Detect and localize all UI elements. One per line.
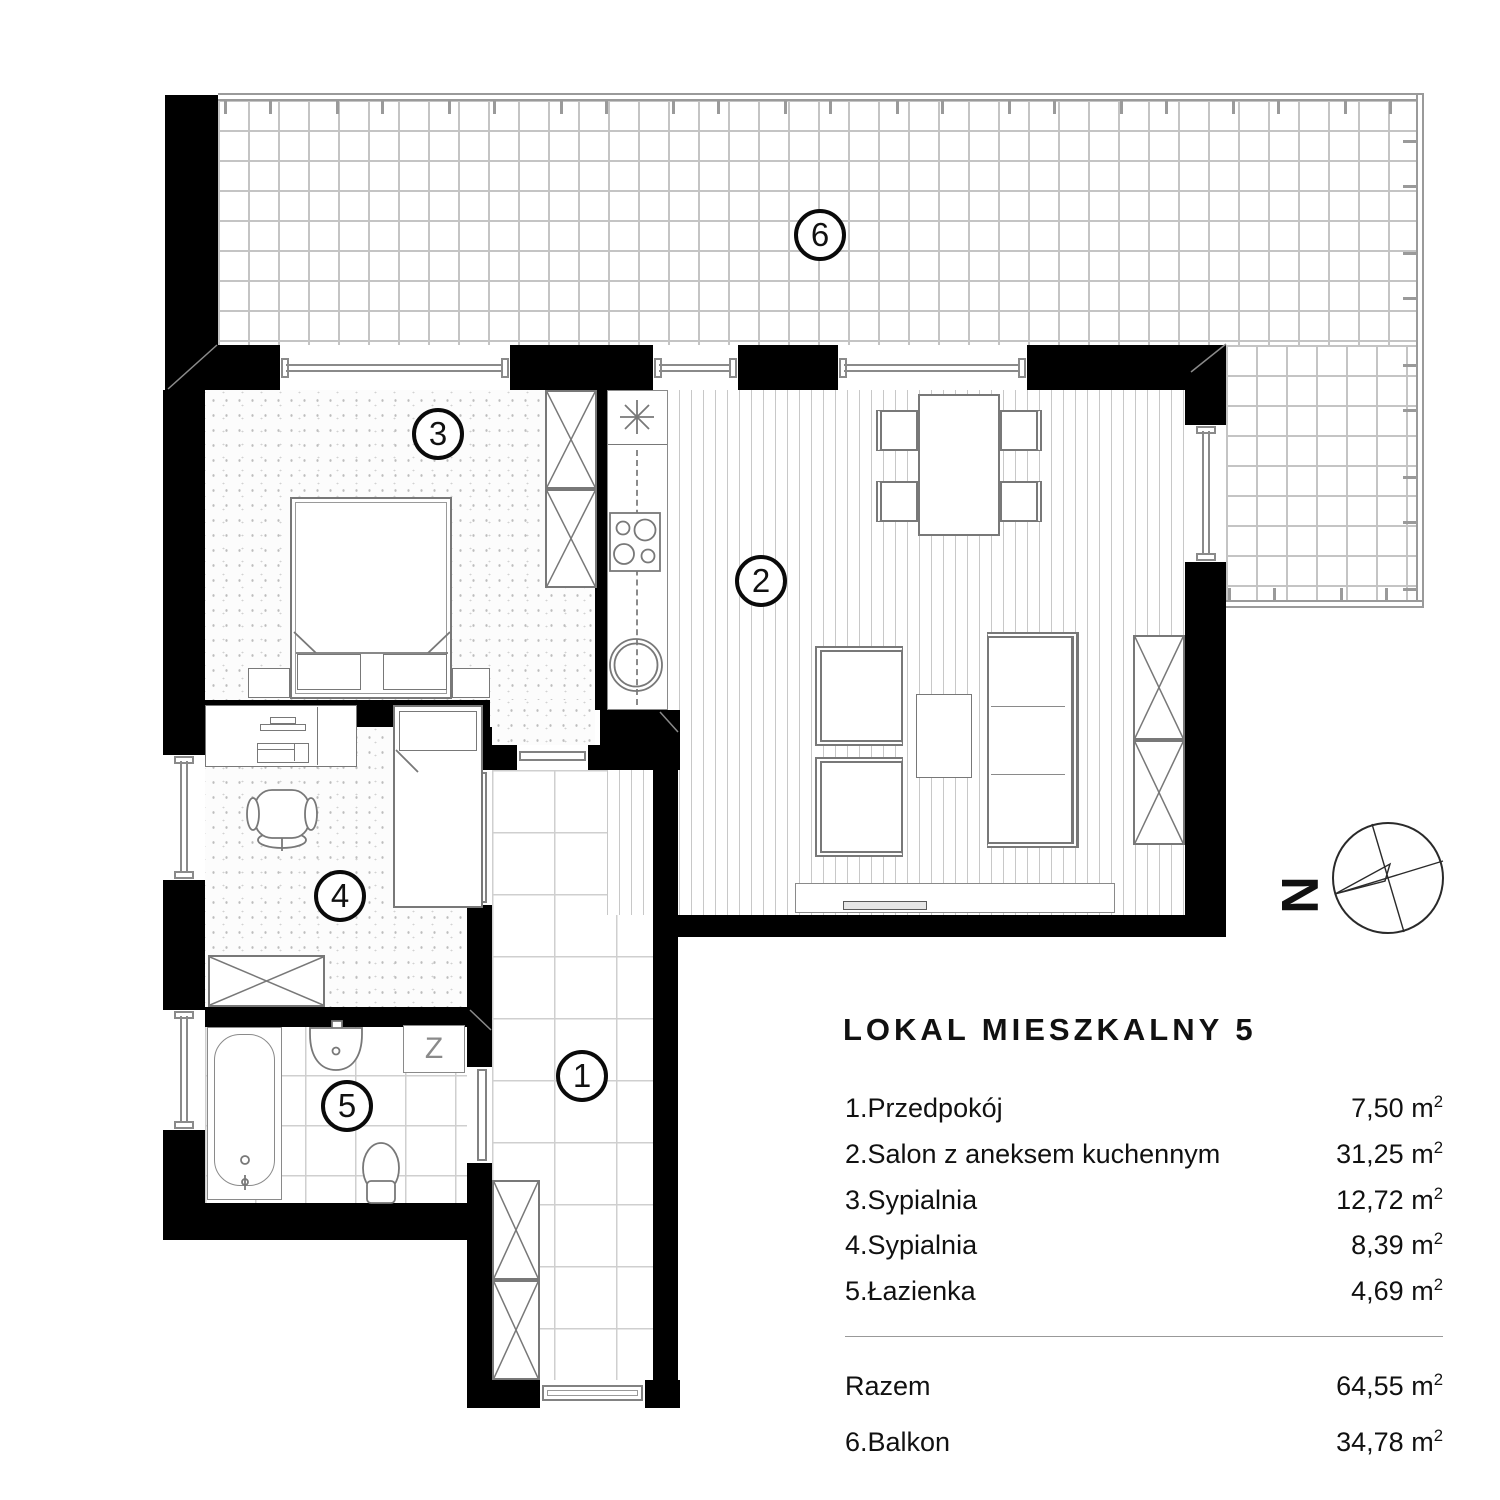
balcony-floor-right (1226, 345, 1420, 602)
armchair (815, 757, 903, 857)
unit-exp: 2 (1434, 1426, 1443, 1445)
room-marker-bedroom4: 4 (314, 870, 366, 922)
unit-exp: 2 (1434, 1370, 1443, 1389)
floor-plan-canvas: Z (0, 0, 1500, 1500)
room-area: 8,39 m2 (1351, 1229, 1443, 1261)
unit-base: m (1411, 1230, 1434, 1260)
bathtub-basin (214, 1034, 275, 1186)
pillow (399, 711, 477, 751)
room-marker-bathroom: 5 (321, 1080, 373, 1132)
room-marker-hallway: 1 (556, 1050, 608, 1102)
room-label: 4.Sypialnia (845, 1230, 977, 1261)
sofa-cushion-line (991, 774, 1065, 775)
area-value: 34,78 (1336, 1427, 1404, 1457)
wall (738, 345, 838, 390)
wall (645, 1380, 680, 1408)
balcony-railing-right (1416, 95, 1424, 608)
balcony-railing-posts-right (1403, 140, 1416, 608)
legend-total-row: Razem 64,55 m2 (845, 1370, 1443, 1404)
wardrobe (208, 955, 325, 1007)
keyboard (257, 743, 309, 763)
door-bathroom (477, 1069, 487, 1161)
wall (490, 745, 517, 770)
balcony-area: 34,78 m2 (1336, 1426, 1443, 1458)
area-value: 4,69 (1351, 1276, 1404, 1306)
window-glazing (286, 364, 504, 372)
window-glazing (180, 761, 188, 874)
wall (165, 345, 280, 390)
room-label: 5.Łazienka (845, 1276, 976, 1307)
area-unit: m2 (1411, 1139, 1443, 1169)
total-area: 64,55 m2 (1336, 1370, 1443, 1402)
wall (1185, 390, 1226, 425)
desk-divider (317, 707, 318, 765)
sofa (987, 632, 1079, 848)
entrance-door-panel (547, 1390, 638, 1396)
area-unit: m2 (1411, 1185, 1443, 1215)
north-label: N (1272, 868, 1326, 922)
monitor-top (270, 717, 296, 724)
room-area: 7,50 m2 (1351, 1092, 1443, 1124)
dining-chair (876, 410, 918, 451)
wall (467, 1380, 540, 1408)
window-bedroom4 (166, 755, 202, 880)
fridge-section-line (608, 444, 667, 445)
tv-cabinet (1133, 740, 1185, 845)
pillow (383, 654, 447, 690)
area-unit: m2 (1411, 1230, 1443, 1260)
room-area: 31,25 m2 (1336, 1138, 1443, 1170)
window-glazing (844, 364, 1021, 372)
wall (653, 915, 1226, 937)
window-glazing (659, 364, 732, 372)
window-living-east (1189, 425, 1222, 562)
window-bedroom3 (280, 347, 510, 388)
unit-base: m (1411, 1185, 1434, 1215)
nightstand (248, 668, 290, 698)
entrance-door (542, 1385, 643, 1401)
area-value: 12,72 (1336, 1185, 1404, 1215)
balcony-railing-bottom (1226, 600, 1422, 608)
window-glazing (1202, 431, 1210, 556)
window-living (838, 347, 1027, 388)
room-label: 2.Salon z aneksem kuchennym (845, 1139, 1220, 1170)
unit-exp: 2 (1434, 1229, 1443, 1248)
washing-machine-label: Z (403, 1025, 465, 1073)
keyboard-line (294, 744, 295, 761)
unit-base: m (1411, 1093, 1434, 1123)
window-bathroom (166, 1010, 202, 1130)
kitchen-tall-cabinet (545, 390, 597, 489)
sofa-cushion-line (991, 706, 1065, 707)
hall-wardrobe (492, 1280, 540, 1380)
room-label: 1.Przedpokój (845, 1093, 1003, 1124)
area-unit: m2 (1411, 1427, 1443, 1457)
window-glazing (180, 1016, 188, 1124)
unit-base: m (1411, 1371, 1434, 1401)
kitchen-tall-cabinet (545, 489, 597, 588)
counter-center-line (636, 450, 638, 705)
legend-row: 5.Łazienka 4,69 m2 (845, 1275, 1443, 1309)
nightstand (452, 668, 490, 698)
legend-row: 3.Sypialnia 12,72 m2 (845, 1184, 1443, 1218)
bedroom3-floor-ext (490, 700, 595, 745)
room-label: 3.Sypialnia (845, 1185, 977, 1216)
wall (588, 745, 607, 770)
room-area: 4,69 m2 (1351, 1275, 1443, 1307)
legend-divider (845, 1336, 1443, 1337)
keyboard-line (258, 749, 294, 750)
dining-table (918, 394, 1000, 536)
pillow (297, 654, 361, 690)
wall (467, 1163, 492, 1380)
room-marker-balcony: 6 (794, 209, 846, 261)
legend-title: LOKAL MIESZKALNY 5 (843, 1012, 1257, 1048)
dining-chair (1000, 481, 1042, 522)
wall (163, 880, 205, 1010)
unit-exp: 2 (1434, 1275, 1443, 1294)
area-unit: m2 (1411, 1371, 1443, 1401)
legend-row: 1.Przedpokój 7,50 m2 (845, 1092, 1443, 1126)
unit-exp: 2 (1434, 1092, 1443, 1111)
area-value: 8,39 (1351, 1230, 1404, 1260)
balcony-label: 6.Balkon (845, 1427, 950, 1458)
balcony-railing-top (218, 93, 1424, 101)
tv-cabinet (1133, 635, 1185, 740)
door-bedroom3 (519, 751, 586, 761)
unit-exp: 2 (1434, 1184, 1443, 1203)
balcony-railing-posts-top (224, 101, 1420, 114)
unit-base: m (1411, 1427, 1434, 1457)
area-value: 64,55 (1336, 1371, 1404, 1401)
legend-row: 4.Sypialnia 8,39 m2 (845, 1229, 1443, 1263)
area-unit: m2 (1411, 1093, 1443, 1123)
wall (510, 345, 653, 390)
unit-base: m (1411, 1139, 1434, 1169)
wall (600, 710, 680, 770)
unit-base: m (1411, 1276, 1434, 1306)
balcony-door-living (653, 347, 738, 388)
wall (165, 95, 218, 345)
wall (1185, 562, 1226, 937)
balcony-railing-posts-bottom (1228, 588, 1420, 601)
armchair (815, 646, 903, 746)
wall (163, 1203, 467, 1240)
monitor (260, 724, 306, 731)
unit-exp: 2 (1434, 1138, 1443, 1157)
area-value: 31,25 (1336, 1139, 1404, 1169)
legend-row: 2.Salon z aneksem kuchennym 31,25 m2 (845, 1138, 1443, 1172)
wall (653, 767, 678, 1380)
compass-icon (1333, 823, 1443, 933)
room-marker-bedroom3: 3 (412, 408, 464, 460)
wall (205, 1007, 467, 1027)
coffee-table (916, 694, 972, 778)
total-label: Razem (845, 1371, 931, 1402)
legend-balcony-row: 6.Balkon 34,78 m2 (845, 1426, 1443, 1460)
dining-chair (1000, 410, 1042, 451)
room-area: 12,72 m2 (1336, 1184, 1443, 1216)
area-value: 7,50 (1351, 1093, 1404, 1123)
tv (843, 901, 927, 910)
wall (467, 905, 492, 1067)
dining-chair (876, 481, 918, 522)
area-unit: m2 (1411, 1276, 1443, 1306)
room-marker-living: 2 (735, 555, 787, 607)
hall-wardrobe (492, 1180, 540, 1280)
wall (1027, 345, 1226, 390)
